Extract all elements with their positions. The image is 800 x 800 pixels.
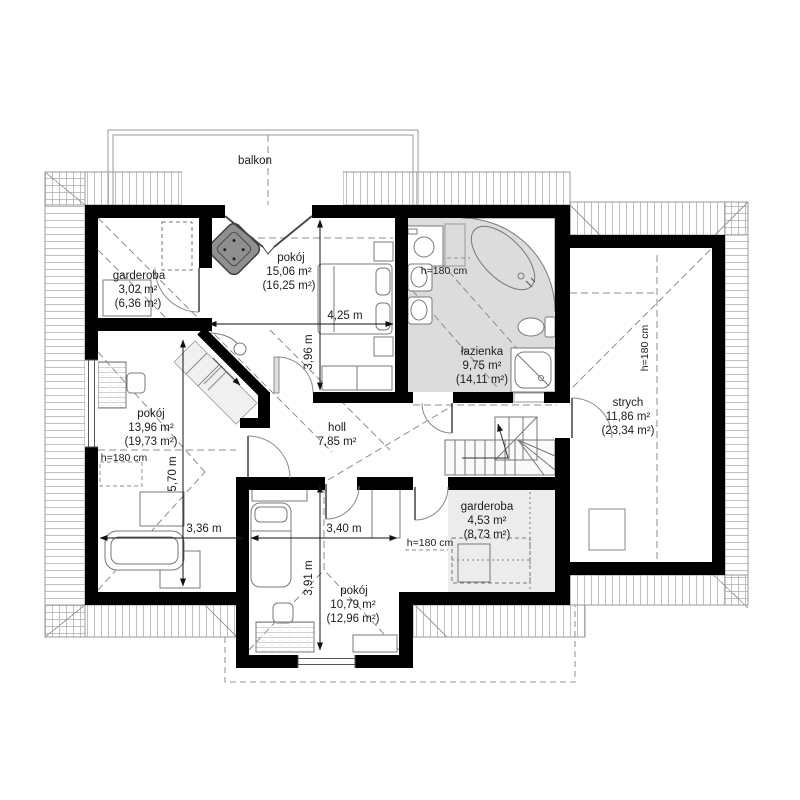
height-note-attic: h=180 cm	[639, 325, 651, 372]
label-bedroom-top: pokój 15,06 m² (16,25 m²)	[262, 252, 315, 292]
room-name: pokój	[340, 585, 368, 597]
room-area-total: (19,73 m²)	[124, 436, 177, 448]
label-wardrobe-top: garderoba 3,02 m² (6,36 m²)	[113, 270, 166, 310]
room-name: strych	[613, 397, 644, 409]
room-area: 10,79 m²	[330, 599, 376, 611]
room-area: 15,06 m²	[266, 266, 312, 278]
room-name: pokój	[137, 408, 165, 420]
balcony-label: balkon	[238, 155, 272, 167]
dim-room-bottom-depth: 3,91 m	[303, 560, 315, 595]
room-area: 7,85 m²	[318, 436, 357, 448]
room-name: garderoba	[461, 501, 514, 513]
label-hall: holl 7,85 m²	[318, 422, 357, 448]
balcony-door-opening	[225, 205, 312, 218]
sink	[408, 297, 432, 324]
room-area: 3,02 m²	[119, 284, 158, 296]
height-note-wardrobe-bottom: h=180 cm	[407, 537, 454, 549]
armchair	[206, 221, 263, 278]
room-area-total: (12,96 m²)	[326, 613, 379, 625]
label-attic: strych 11,86 m² (23,34 m²)	[601, 397, 654, 437]
room-name: garderoba	[113, 270, 166, 282]
label-room-bottom: pokój 10,79 m² (12,96 m²)	[326, 585, 379, 625]
dim-room-bottom-width: 3,40 m	[326, 523, 361, 535]
room-area-total: (16,25 m²)	[262, 280, 315, 292]
room-name: pokój	[277, 252, 305, 264]
room-area: 4,53 m²	[468, 515, 507, 527]
floor-plan: balkon	[0, 0, 800, 800]
nightstand	[374, 337, 393, 356]
room-area-total: (14,11 m²)	[456, 374, 508, 386]
label-bathroom: łazienka 9,75 m² (14,11 m²)	[456, 346, 508, 386]
window-left-wall	[85, 360, 98, 447]
room-area: 9,75 m²	[463, 360, 502, 372]
chimney	[589, 509, 625, 550]
door-room-bottom	[326, 484, 359, 519]
dresser	[322, 366, 392, 390]
door-wardrobe-bottom	[415, 487, 448, 520]
stairs-main	[445, 417, 555, 475]
room-area-total: (8,73 m²)	[464, 529, 511, 541]
desk	[98, 362, 145, 408]
height-note-room-left: h=180 cm	[101, 452, 148, 464]
dim-bedroom-width: 4,25 m	[327, 310, 362, 322]
window-bottom-room	[298, 655, 355, 668]
dim-room-left-width: 3,36 m	[186, 523, 221, 535]
room-name: łazienka	[461, 346, 504, 358]
room-area-total: (23,34 m²)	[601, 425, 654, 437]
cabinet	[353, 635, 397, 652]
single-bed	[251, 503, 291, 587]
nightstand	[374, 242, 393, 261]
floor-plan-page: balkon	[0, 0, 800, 800]
door-bathroom	[422, 403, 452, 433]
cabinet	[140, 492, 184, 526]
desk	[256, 603, 314, 652]
door-room-left	[248, 436, 290, 478]
wardrobe-cabinet	[162, 222, 192, 270]
room-area: 13,96 m²	[128, 422, 174, 434]
label-wardrobe-bottom: garderoba 4,53 m² (8,73 m²)	[461, 501, 514, 541]
toilet	[518, 317, 555, 337]
dim-bedroom-depth: 3,96 m	[303, 334, 315, 369]
room-name: holl	[328, 422, 346, 434]
room-area: 11,86 m²	[606, 411, 651, 423]
label-room-left: pokój 13,96 m² (19,73 m²)	[124, 408, 177, 448]
room-area-total: (6,36 m²)	[115, 298, 162, 310]
dim-room-left-depth: 5,70 m	[167, 456, 179, 491]
sofa	[105, 531, 184, 570]
tall-wardrobe	[372, 484, 400, 538]
height-note-bathroom: h=180 cm	[421, 265, 468, 277]
